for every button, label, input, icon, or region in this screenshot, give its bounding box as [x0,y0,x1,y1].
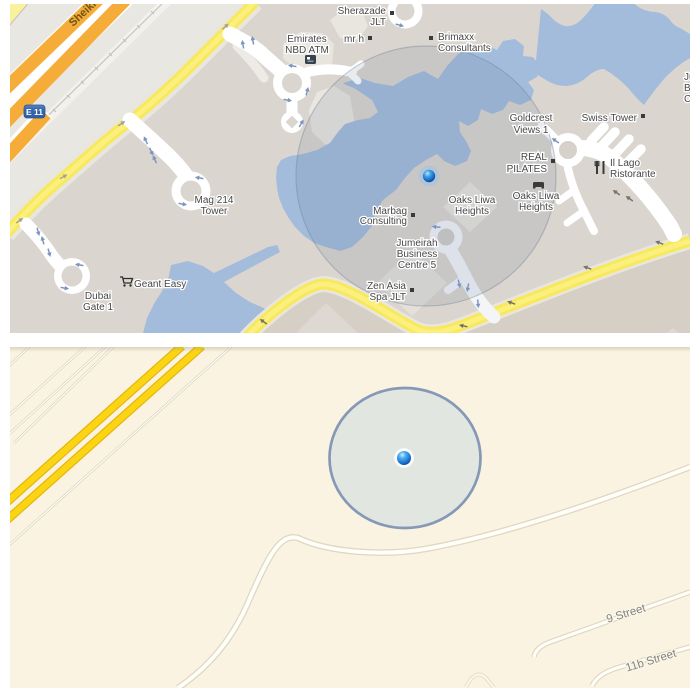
svg-text:E 11: E 11 [26,107,43,117]
svg-text:Heights: Heights [519,202,553,213]
svg-text:REAL: REAL [521,152,548,163]
svg-text:JLT: JLT [370,17,386,28]
svg-text:NBD ATM: NBD ATM [285,45,329,56]
svg-text:Bu: Bu [684,83,690,94]
svg-text:Tower: Tower [201,206,228,217]
svg-text:Oaks Liwa: Oaks Liwa [449,195,496,206]
svg-text:Ju: Ju [684,72,690,83]
svg-text:Sherazade: Sherazade [338,6,387,17]
svg-text:PILATES: PILATES [507,164,548,175]
svg-text:Brimaxx: Brimaxx [438,32,474,43]
svg-text:Heights: Heights [455,206,489,217]
svg-text:mr h: mr h [344,34,364,45]
svg-text:Spa JLT: Spa JLT [370,292,407,303]
svg-text:Swiss Tower: Swiss Tower [582,113,638,124]
svg-text:Consultants: Consultants [438,43,491,54]
svg-text:Dubai: Dubai [85,291,111,302]
svg-text:Jumeirah: Jumeirah [396,238,437,249]
svg-text:Ristorante: Ristorante [610,169,656,180]
svg-text:Oaks Liwa: Oaks Liwa [513,191,560,202]
svg-text:Goldcrest: Goldcrest [510,113,553,124]
svg-text:Emirates: Emirates [287,34,326,45]
svg-text:Consulting: Consulting [360,216,407,227]
svg-text:Mag 214: Mag 214 [195,195,234,206]
svg-text:Gate 1: Gate 1 [83,302,113,313]
svg-text:Il Lago: Il Lago [610,158,640,169]
svg-text:Views 1: Views 1 [514,125,549,136]
svg-text:Zen Asia: Zen Asia [367,281,406,292]
svg-text:Business: Business [397,249,438,260]
svg-text:Centre 5: Centre 5 [398,260,437,271]
svg-text:Geant Easy: Geant Easy [134,279,186,290]
svg-text:Ce: Ce [684,94,690,105]
